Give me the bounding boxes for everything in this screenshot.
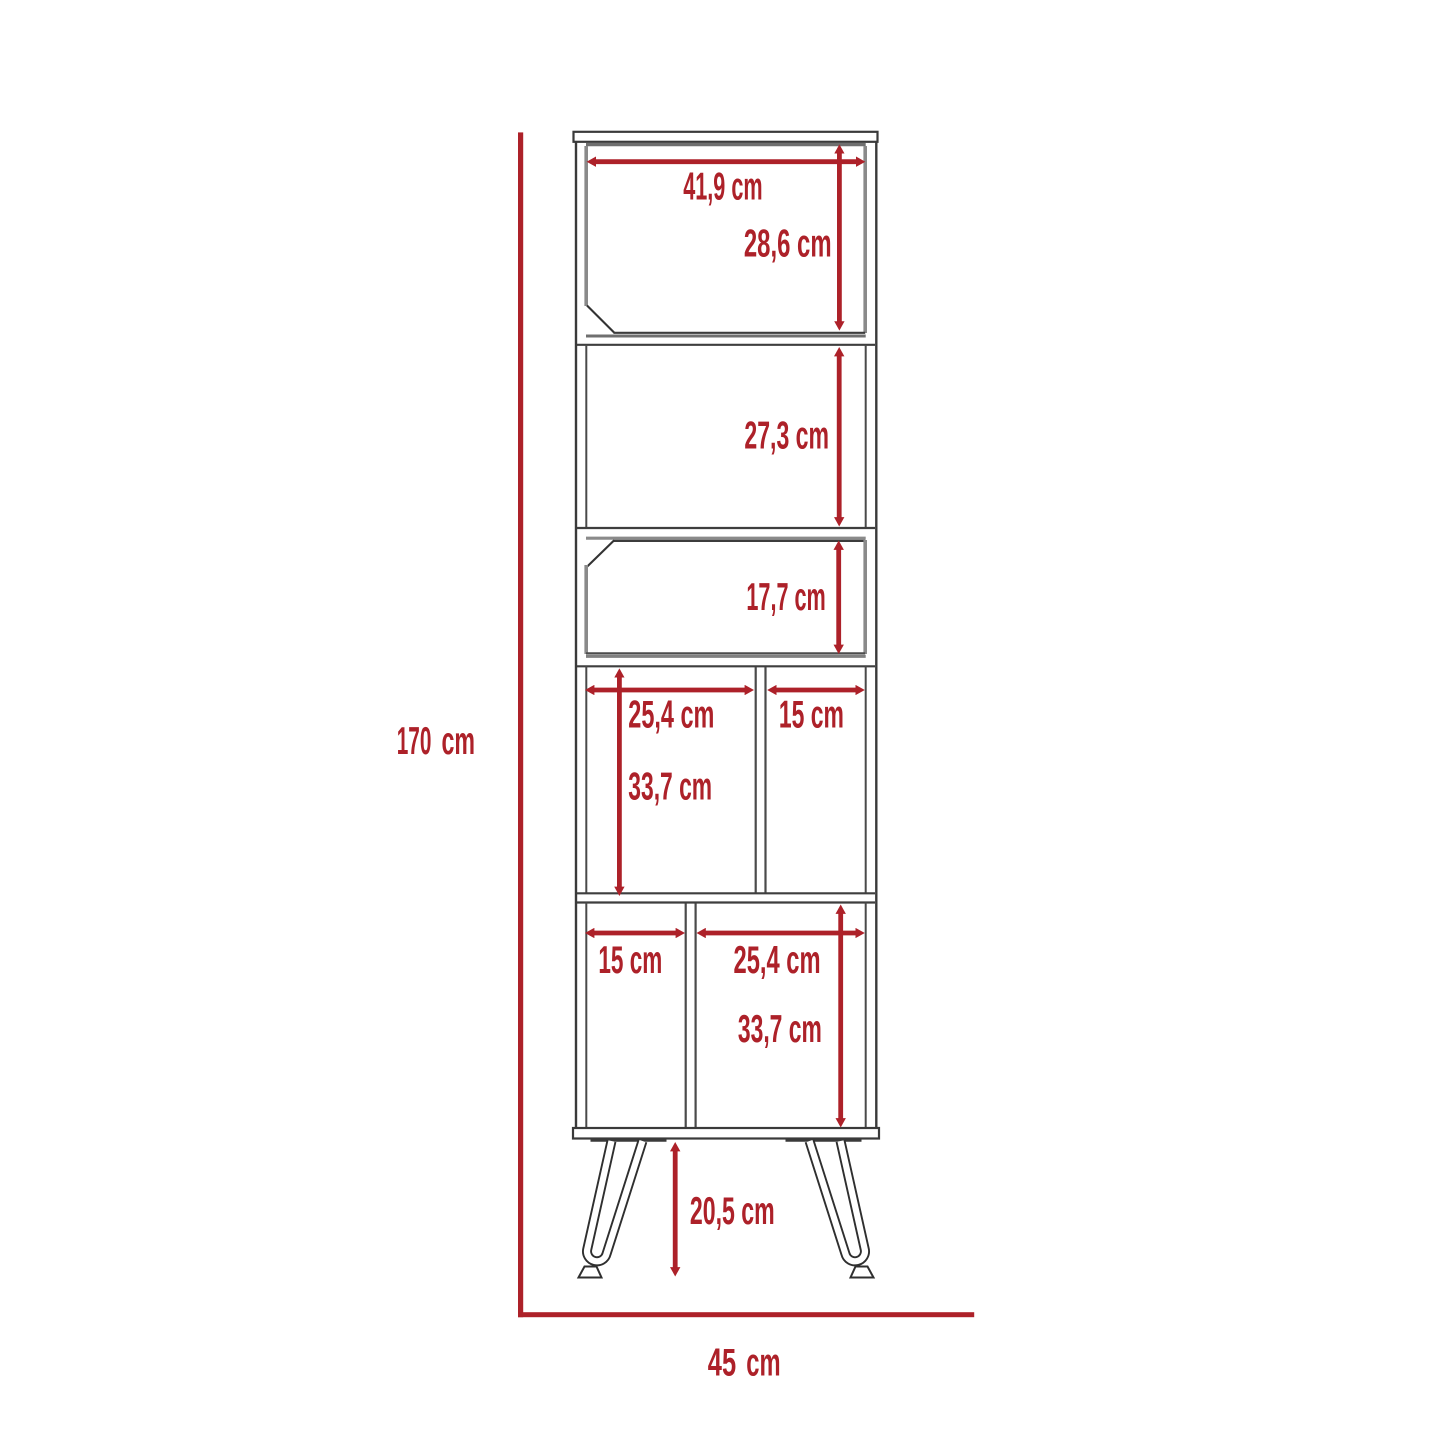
svg-text:45: 45 bbox=[708, 1341, 736, 1384]
svg-text:15 cm: 15 cm bbox=[598, 939, 662, 982]
svg-text:cm: cm bbox=[746, 1341, 780, 1384]
svg-text:17,7 cm: 17,7 cm bbox=[746, 576, 825, 619]
svg-text:41,9 cm: 41,9 cm bbox=[683, 166, 762, 209]
svg-text:27,3 cm: 27,3 cm bbox=[744, 414, 829, 457]
svg-text:20,5 cm: 20,5 cm bbox=[690, 1190, 775, 1233]
svg-text:170: 170 bbox=[397, 720, 432, 763]
svg-text:cm: cm bbox=[442, 720, 476, 763]
svg-text:33,7 cm: 33,7 cm bbox=[738, 1008, 822, 1051]
svg-text:15 cm: 15 cm bbox=[779, 694, 844, 737]
svg-text:25,4 cm: 25,4 cm bbox=[628, 694, 714, 737]
svg-text:25,4 cm: 25,4 cm bbox=[734, 939, 821, 982]
svg-text:28,6 cm: 28,6 cm bbox=[744, 223, 832, 266]
svg-text:33,7 cm: 33,7 cm bbox=[628, 766, 712, 809]
